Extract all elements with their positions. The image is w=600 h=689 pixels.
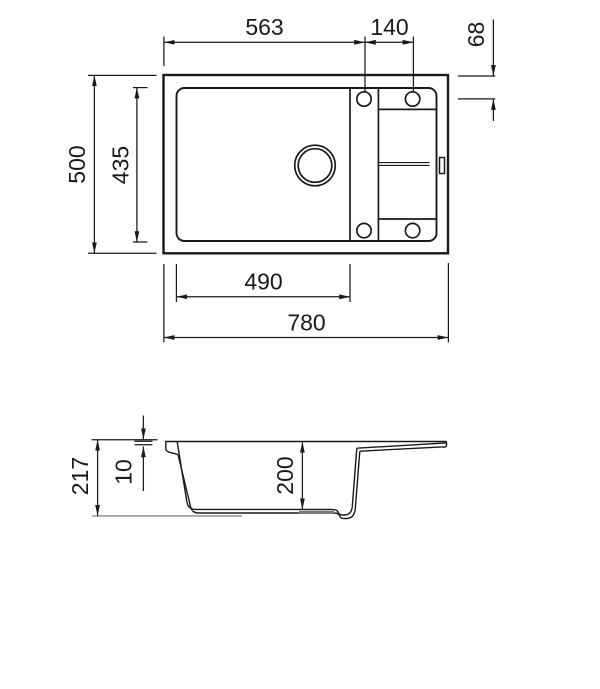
dim-label-200: 200: [272, 456, 298, 494]
dim-bowl-length: 490: [176, 264, 350, 302]
bowl-outer-profile: [178, 451, 360, 518]
dim-inner-depth: 435: [108, 88, 148, 242]
bowl-inner-profile: [177, 442, 357, 515]
right-rim-edge: [442, 442, 447, 448]
top-view: [164, 75, 449, 253]
dim-tap-inset-from-top: 68: [458, 20, 495, 122]
dim-label-217: 217: [67, 457, 93, 495]
technical-drawing-canvas: 563 140 68 500 435 490 780: [0, 0, 600, 689]
dim-overall-length: 780: [164, 263, 449, 342]
side-view: [92, 442, 447, 519]
dim-label-563: 563: [245, 14, 283, 40]
sink-dimension-drawing: 563 140 68 500 435 490 780: [0, 0, 600, 689]
left-rim-edge: [166, 442, 178, 455]
dim-label-10: 10: [111, 459, 137, 485]
dim-label-140: 140: [370, 14, 408, 40]
dim-label-68: 68: [463, 22, 489, 48]
dim-bowl-depth: 200: [272, 442, 302, 510]
overflow-slot: [440, 158, 445, 174]
dim-label-500: 500: [64, 145, 90, 183]
dim-label-780: 780: [287, 310, 325, 336]
dim-rim-thickness: 10: [111, 416, 153, 492]
dim-label-435: 435: [108, 146, 134, 184]
dim-label-490: 490: [244, 269, 282, 295]
